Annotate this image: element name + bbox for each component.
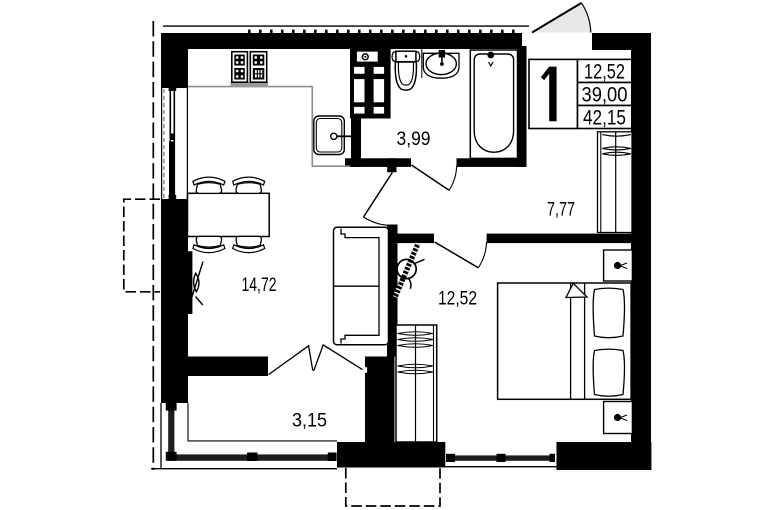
svg-text:3,99: 3,99 [397,129,431,150]
svg-text:12,52: 12,52 [438,288,477,309]
svg-text:39,00: 39,00 [582,84,628,107]
svg-text:14,72: 14,72 [242,275,277,296]
svg-text:42,15: 42,15 [583,107,626,130]
svg-text:3,15: 3,15 [292,410,327,431]
svg-text:7,77: 7,77 [547,199,575,220]
svg-text:12,52: 12,52 [584,61,625,84]
